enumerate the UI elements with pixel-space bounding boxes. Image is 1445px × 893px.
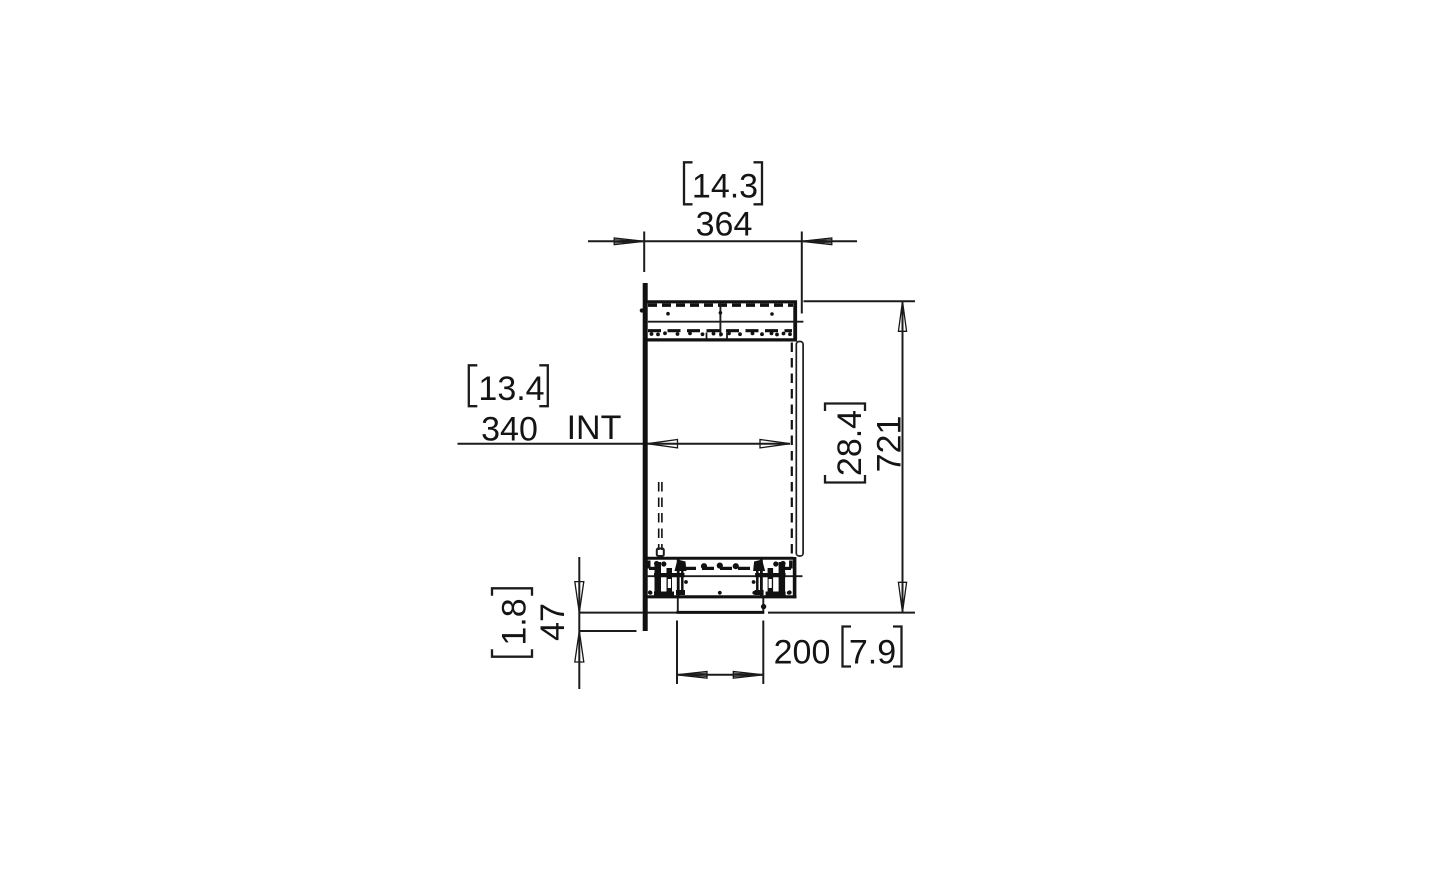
svg-text:13.4: 13.4	[478, 370, 544, 408]
svg-text:364: 364	[696, 205, 753, 243]
svg-text:14.3: 14.3	[692, 168, 758, 206]
svg-text:INT: INT	[567, 409, 622, 447]
svg-text:1.8: 1.8	[496, 598, 534, 645]
svg-text:47: 47	[534, 603, 572, 641]
svg-text:340: 340	[481, 410, 538, 448]
svg-text:28.4: 28.4	[831, 410, 869, 476]
svg-text:200: 200	[774, 634, 831, 672]
svg-text:7.9: 7.9	[849, 634, 896, 672]
